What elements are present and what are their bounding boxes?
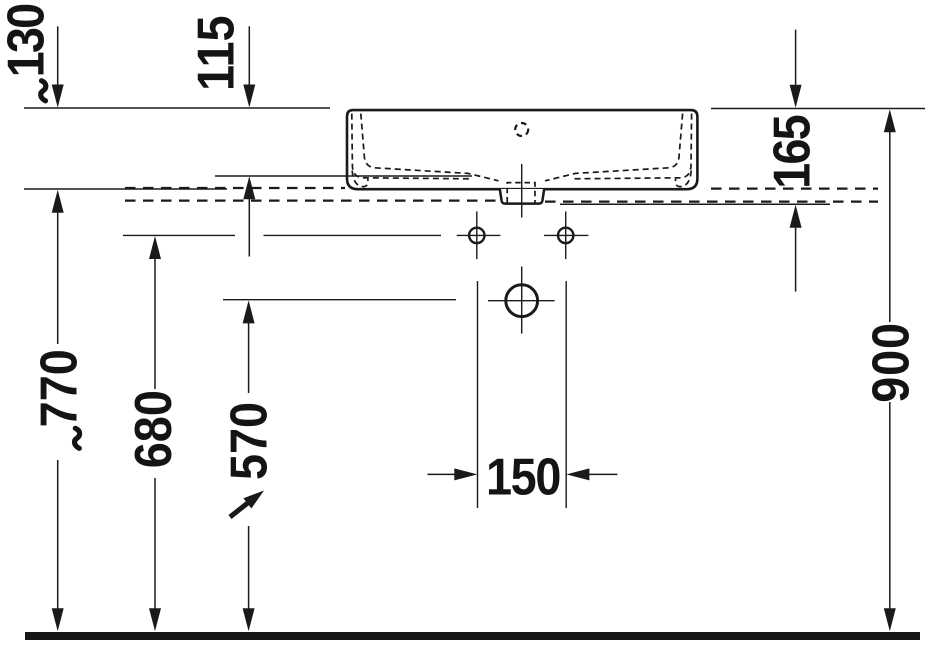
svg-text:130: 130 (0, 4, 55, 77)
svg-text:115: 115 (187, 15, 245, 90)
svg-text:900: 900 (862, 322, 920, 403)
svg-text:165: 165 (763, 115, 821, 189)
svg-text:150: 150 (486, 448, 560, 506)
svg-text:680: 680 (125, 390, 183, 468)
svg-text:570: 570 (220, 402, 278, 480)
svg-text:770: 770 (30, 349, 88, 427)
